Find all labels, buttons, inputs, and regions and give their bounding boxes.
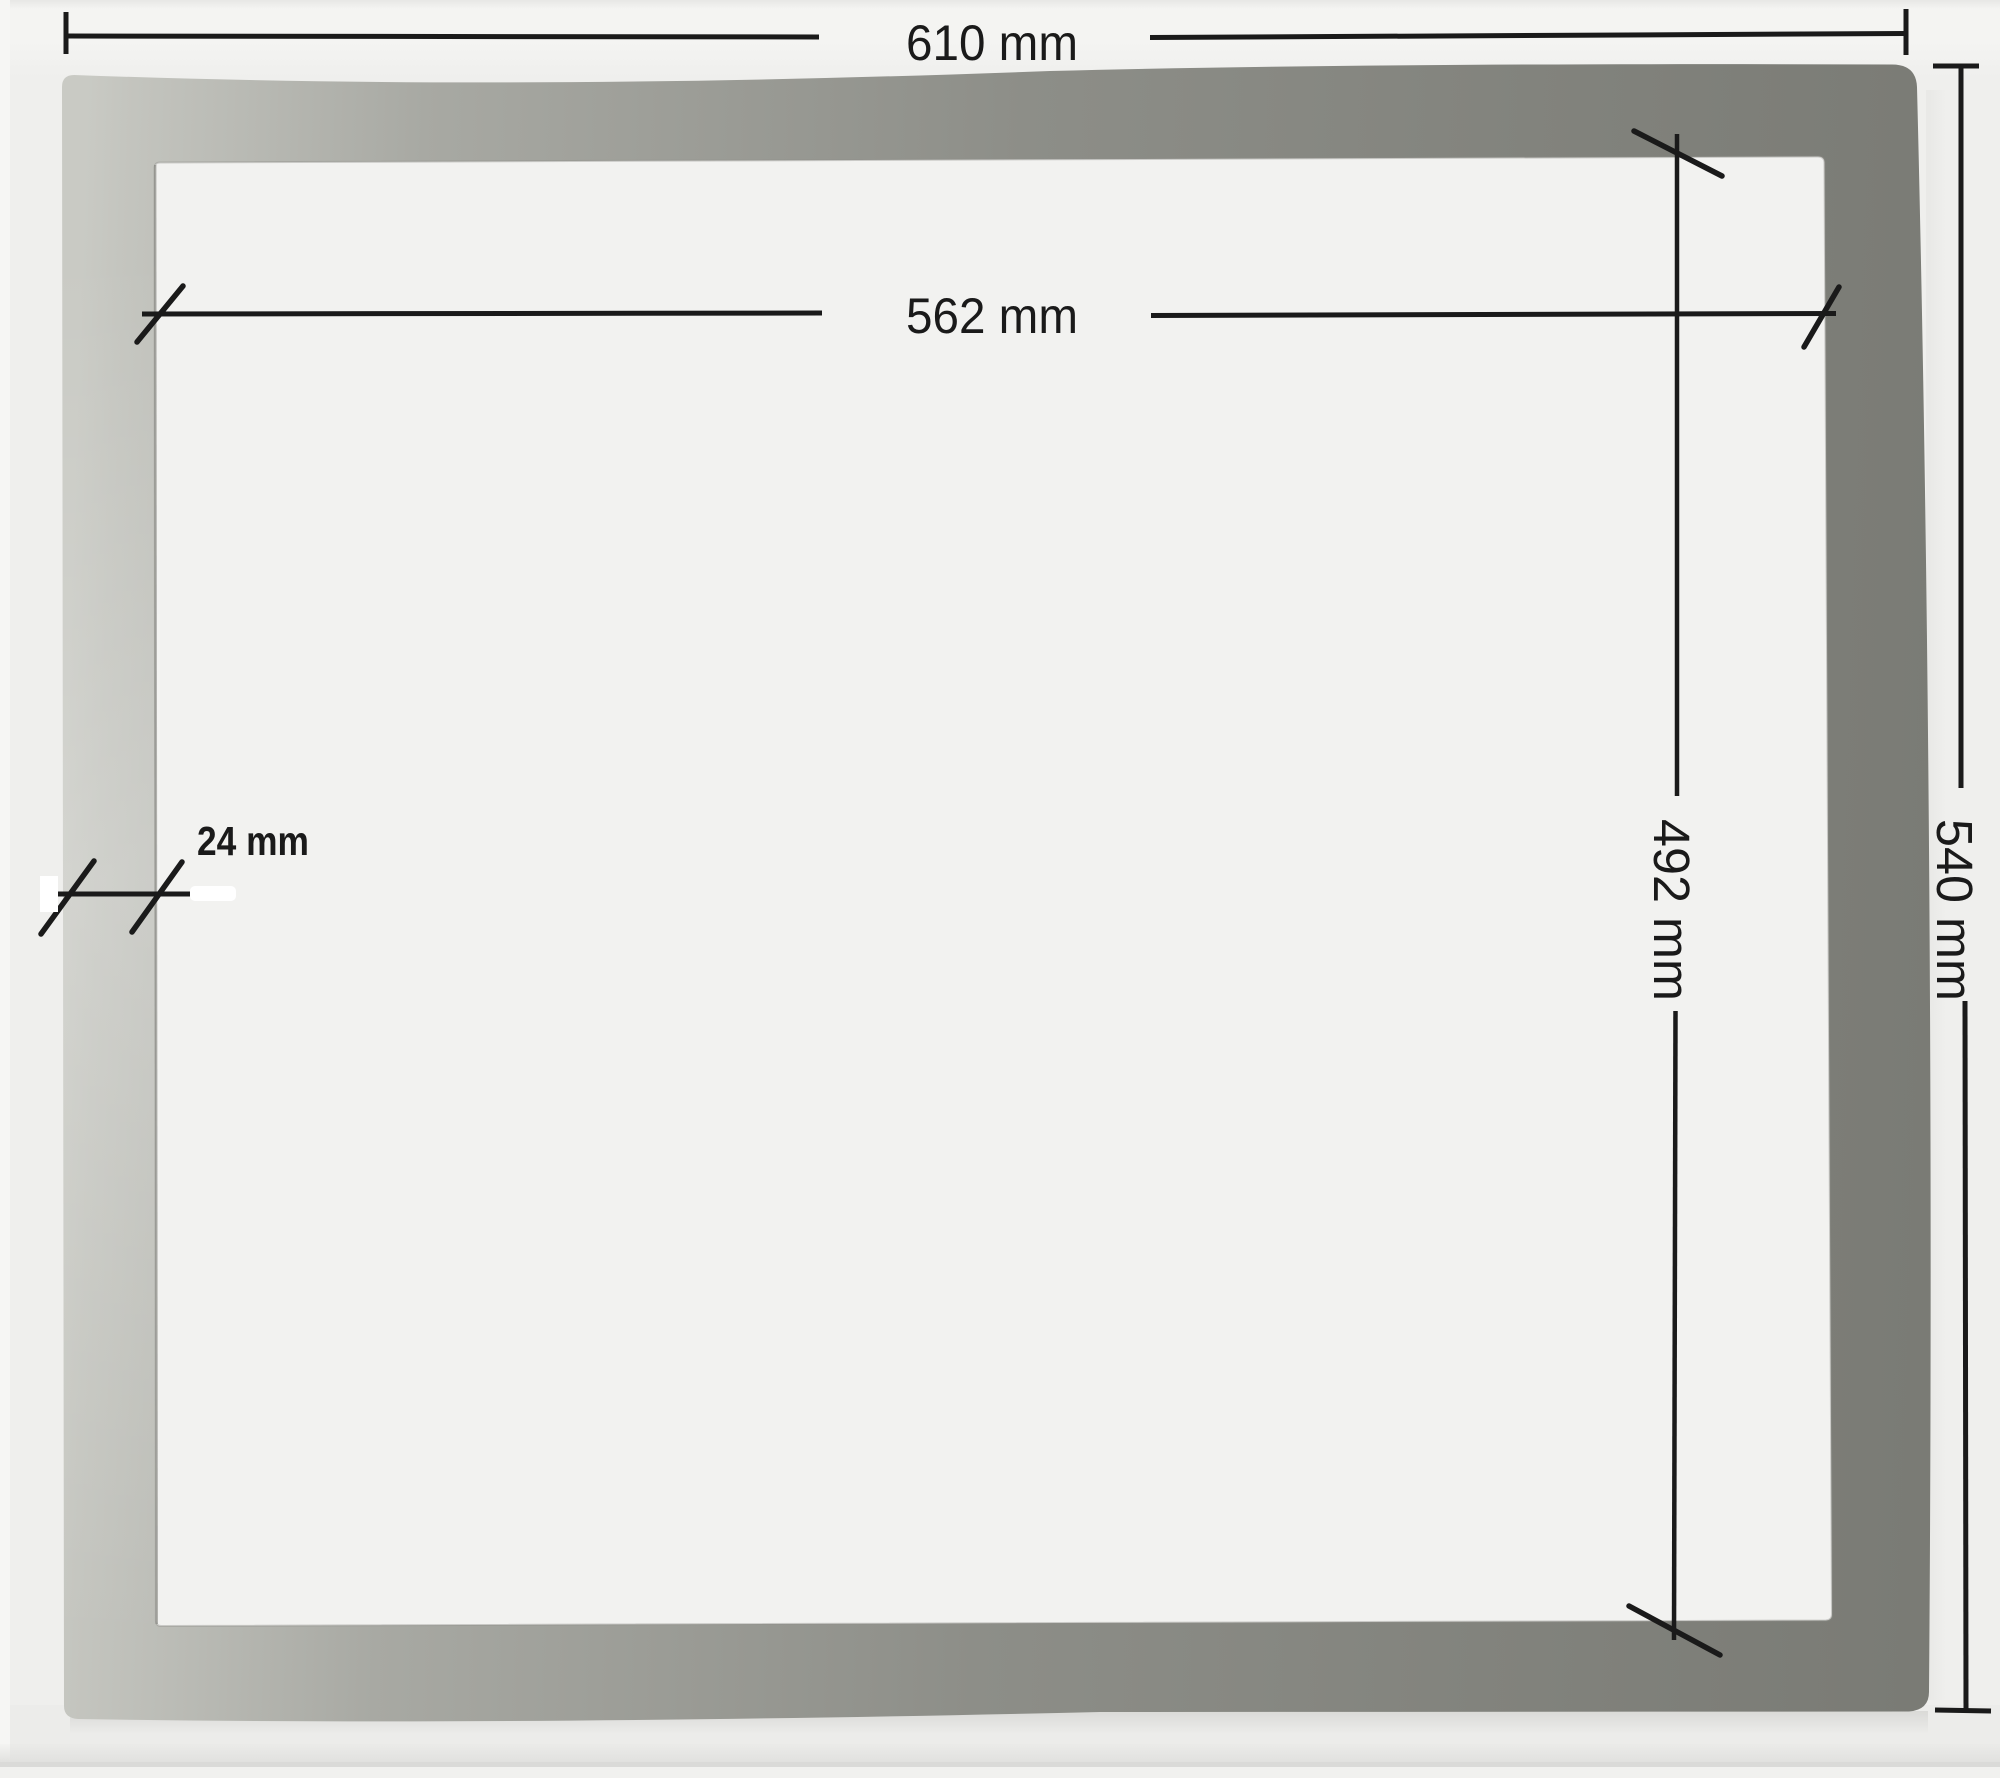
svg-text:540 mm: 540 mm xyxy=(1926,819,1983,1001)
svg-text:492 mm: 492 mm xyxy=(1643,819,1700,1001)
svg-text:24 mm: 24 mm xyxy=(197,818,309,864)
svg-text:610 mm: 610 mm xyxy=(906,15,1078,71)
svg-text:562 mm: 562 mm xyxy=(906,288,1078,344)
